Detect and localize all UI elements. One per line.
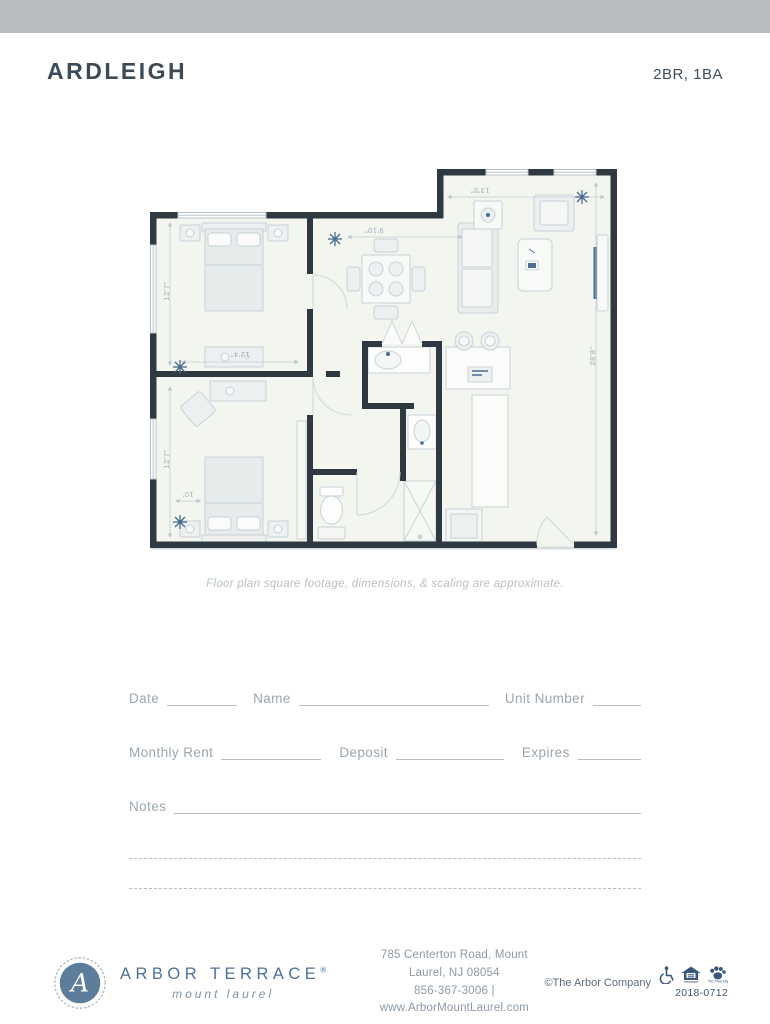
address-block: 785 Centerton Road, Mount Laurel, NJ 080…: [364, 947, 544, 1018]
address-line: 785 Centerton Road, Mount Laurel, NJ 080…: [364, 947, 544, 983]
brand-tagline: mount laurel: [120, 987, 326, 1001]
coffee-table: [518, 239, 552, 291]
expires-label: Expires: [522, 745, 578, 760]
date-label: Date: [129, 691, 167, 706]
sofa: [458, 223, 498, 313]
vanity-sink: [368, 347, 430, 373]
page-title: ARDLEIGH: [47, 58, 187, 85]
closet-shelf: [297, 421, 306, 539]
dim-living-width: 13'5": [470, 186, 489, 195]
phone-web-line: 856-367-3006 | www.ArborMountLaurel.com: [364, 983, 544, 1019]
registered-mark: ®: [320, 965, 326, 974]
top-bar: [0, 0, 770, 33]
logo-monogram: A: [69, 968, 89, 997]
copyright-text: ©The Arbor Company: [544, 977, 651, 989]
name-label: Name: [253, 691, 299, 706]
notes-line-2: [129, 858, 641, 859]
side-table-lamp: [474, 201, 502, 229]
dim-bedroom1-height: 12'7": [162, 281, 171, 300]
write-in-form: Date Name Unit Number Monthly Rent Depos…: [129, 690, 641, 889]
armchair: [534, 195, 574, 231]
kitchen-counter: [472, 395, 508, 507]
footer: A ARBOR TERRACE® mount laurel 785 Center…: [0, 947, 770, 1018]
plan-caption: Floor plan square footage, dimensions, &…: [150, 578, 620, 590]
notes-line-3: [129, 888, 641, 889]
date-line: [167, 690, 237, 706]
deposit-line: [396, 744, 504, 760]
dim-unit-height: 28'8": [588, 346, 597, 365]
monthly-rent-line: [221, 744, 321, 760]
dim-bedroom2-width: 10': [182, 490, 193, 499]
flyer-page: ARDLEIGH 2BR, 1BA: [0, 0, 770, 1024]
form-row-notes: Notes: [129, 798, 641, 814]
unit-number-label: Unit Number: [505, 691, 593, 706]
unit-type-label: 2BR, 1BA: [653, 66, 723, 83]
dim-bedroom1-width: 12'4": [230, 350, 249, 359]
document-code: 2018-0712: [675, 987, 728, 999]
brand-name: ARBOR TERRACE: [120, 965, 320, 983]
dim-bedroom2-height: 12'7": [162, 449, 171, 468]
shower: [404, 481, 436, 541]
floor-plan-container: 12'7" 12'4" 12'7" 10' 13'5" 9'10" 28'8": [150, 169, 620, 590]
dim-dining-width: 9'10": [364, 226, 383, 235]
name-line: [299, 690, 489, 706]
form-row-1: Date Name Unit Number: [129, 690, 641, 706]
expires-line: [578, 744, 641, 760]
second-sink: [408, 415, 436, 449]
form-row-2: Monthly Rent Deposit Expires: [129, 744, 641, 760]
brand-block: ARBOR TERRACE® mount laurel: [120, 965, 326, 1001]
footer-right: ©The Arbor Company: [544, 966, 728, 999]
toilet: [318, 487, 345, 539]
pet-friendly-icon: Pet Friendly: [708, 966, 728, 984]
floor-plan: 12'7" 12'4" 12'7" 10' 13'5" 9'10" 28'8": [150, 169, 620, 559]
pet-friendly-label: Pet Friendly: [708, 979, 728, 984]
unit-number-line: [593, 690, 641, 706]
equal-housing-icon: [681, 966, 701, 984]
notes-label: Notes: [129, 799, 174, 814]
notes-line: [174, 798, 641, 814]
bedroom2-dresser: [210, 381, 266, 401]
monthly-rent-label: Monthly Rent: [129, 745, 221, 760]
wheelchair-accessible-icon: [659, 966, 674, 984]
arbor-terrace-logo: A: [52, 955, 108, 1011]
header: ARDLEIGH 2BR, 1BA: [0, 33, 770, 85]
fridge: [446, 509, 482, 543]
deposit-label: Deposit: [339, 745, 396, 760]
